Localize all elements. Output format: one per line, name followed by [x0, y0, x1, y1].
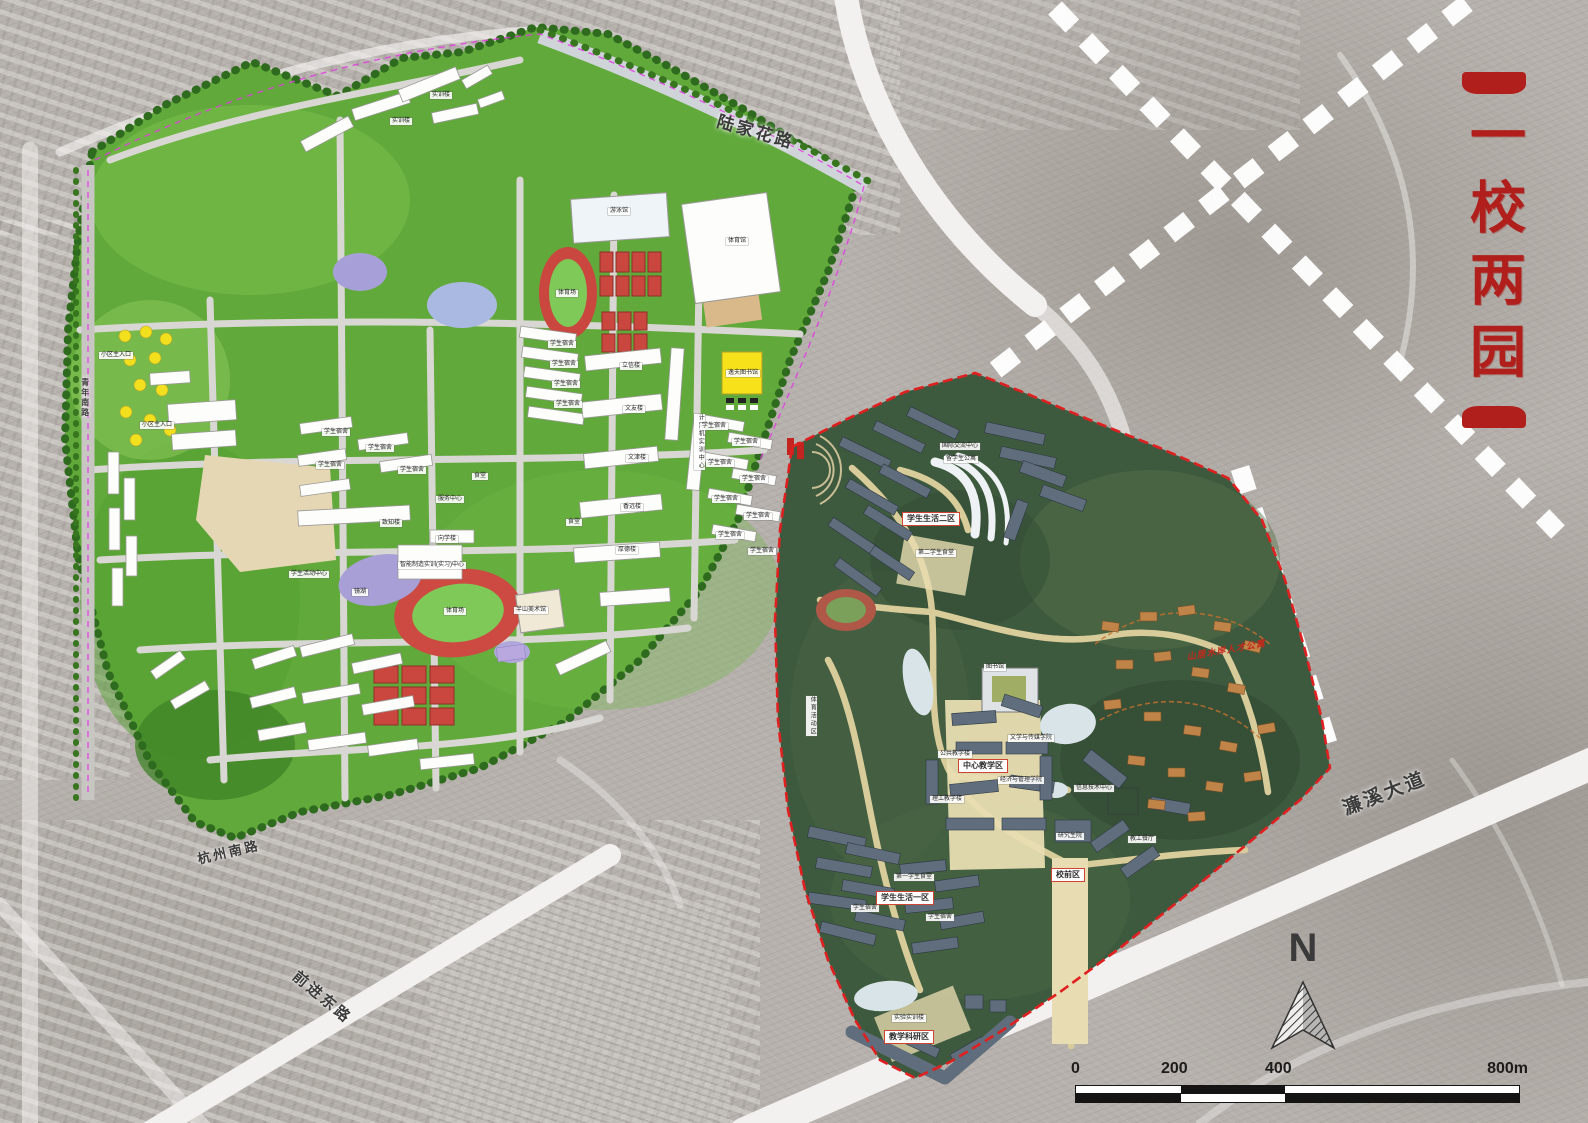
- building-label: 体育活动区: [806, 696, 817, 736]
- building-label: 文津楼: [626, 455, 648, 462]
- building-label: 智能制造实训(实习)中心: [398, 562, 466, 569]
- building-label: 校前区: [1051, 868, 1085, 882]
- building-label: 教工餐厅: [1128, 836, 1156, 843]
- title-bracket-top-icon: [1462, 72, 1526, 94]
- building-label: 学生生活一区: [876, 891, 934, 905]
- building-label: 向学楼: [436, 536, 458, 543]
- road-label: 杭州南路: [196, 838, 262, 868]
- road-label: 前进东路: [288, 968, 355, 1028]
- building-label: 学生宿舍: [851, 905, 879, 912]
- title-bracket-bottom-icon: [1462, 406, 1526, 428]
- building-label: 逸夫图书馆: [726, 370, 760, 377]
- building-label: 学生生活二区: [902, 512, 960, 526]
- building-label: 小区主入口: [140, 422, 174, 429]
- building-label: 第二学生食堂: [916, 550, 956, 557]
- building-label: 学生活动中心: [289, 571, 329, 578]
- building-label: 游泳馆: [608, 208, 630, 215]
- building-label: 实训楼: [430, 92, 452, 99]
- scale-tick: 400: [1265, 1060, 1292, 1078]
- building-label: 学生宿舍: [748, 548, 776, 555]
- plan-title: 一校两园: [1444, 72, 1544, 520]
- road-label: 濂溪大道: [1340, 768, 1430, 821]
- building-label: 理工教学楼: [930, 796, 964, 803]
- building-label: 半山美术馆: [514, 607, 548, 614]
- building-label: 学生宿舍: [398, 467, 426, 474]
- scale-tick: 0: [1071, 1060, 1080, 1078]
- plan-title-text: 一校两园: [1454, 106, 1535, 394]
- building-label: 图书馆: [984, 664, 1006, 671]
- building-label: 学生宿舍: [706, 460, 734, 467]
- building-label: 小区主入口: [99, 352, 133, 359]
- building-label: 国际交流中心: [940, 443, 980, 450]
- scale-tick: 200: [1161, 1060, 1188, 1078]
- scale-bar: 0 200 400 800m: [1075, 1060, 1520, 1103]
- building-label: 致知楼: [380, 520, 402, 527]
- building-label: 学生宿舍: [550, 361, 578, 368]
- building-label: 学生宿舍: [926, 914, 954, 921]
- building-label: 学生宿舍: [740, 476, 768, 483]
- building-label: 体育场: [444, 608, 466, 615]
- road-label: 青年南路: [80, 378, 90, 418]
- building-label: 学生宿舍: [744, 513, 772, 520]
- building-label: 中心教学区: [958, 759, 1008, 773]
- building-label: 公共教学楼: [938, 751, 972, 758]
- building-label: 学生宿舍: [716, 532, 744, 539]
- scale-bar-row: [1075, 1085, 1520, 1094]
- building-label: 体育场: [556, 290, 578, 297]
- building-label: 学生宿舍: [548, 341, 576, 348]
- building-label: 服务中心: [436, 496, 464, 503]
- north-label: N: [1260, 926, 1346, 971]
- building-label: 学生宿舍: [316, 462, 344, 469]
- building-label: 学生宿舍: [712, 496, 740, 503]
- building-label: 学生宿舍: [554, 401, 582, 408]
- building-label: 厚德楼: [616, 547, 638, 554]
- building-label: 留学生公寓: [944, 456, 978, 463]
- campus-master-plan-map: 游泳馆体育馆体育场体育场逸夫图书馆计算机实训中心立信楼文友楼文津楼香远楼厚德楼致…: [0, 0, 1588, 1123]
- building-label: 学生宿舍: [700, 423, 728, 430]
- building-label: 信息技术中心: [1074, 785, 1114, 792]
- building-label: 研究生院: [1056, 833, 1084, 840]
- building-label: 实训楼: [390, 118, 412, 125]
- building-label: 第一学生食堂: [894, 874, 934, 881]
- building-label: 学生宿舍: [322, 429, 350, 436]
- scale-bar-row: [1075, 1094, 1520, 1103]
- map-labels-layer: 游泳馆体育馆体育场体育场逸夫图书馆计算机实训中心立信楼文友楼文津楼香远楼厚德楼致…: [0, 0, 1588, 1123]
- building-label: 学生宿舍: [366, 445, 394, 452]
- building-label: 教学科研区: [884, 1030, 934, 1044]
- building-label: 食堂: [472, 473, 488, 480]
- building-label: 学生宿舍: [552, 381, 580, 388]
- building-label: 食堂: [566, 519, 582, 526]
- building-label: 实验实训楼: [892, 1015, 926, 1022]
- building-label: 经济与管理学院: [998, 777, 1044, 784]
- building-label: 体育馆: [726, 238, 748, 245]
- road-label: 陆家花路: [714, 112, 797, 154]
- building-label: 立信楼: [620, 363, 642, 370]
- building-label: 香远楼: [621, 504, 643, 511]
- scale-tick: 800m: [1487, 1060, 1528, 1078]
- building-label: 镜湖: [352, 589, 368, 596]
- building-label: 文学与传媒学院: [1008, 735, 1054, 742]
- building-label: 山居水岸人才公寓: [1186, 638, 1267, 663]
- building-label: 学生宿舍: [732, 439, 760, 446]
- building-label: 文友楼: [623, 406, 645, 413]
